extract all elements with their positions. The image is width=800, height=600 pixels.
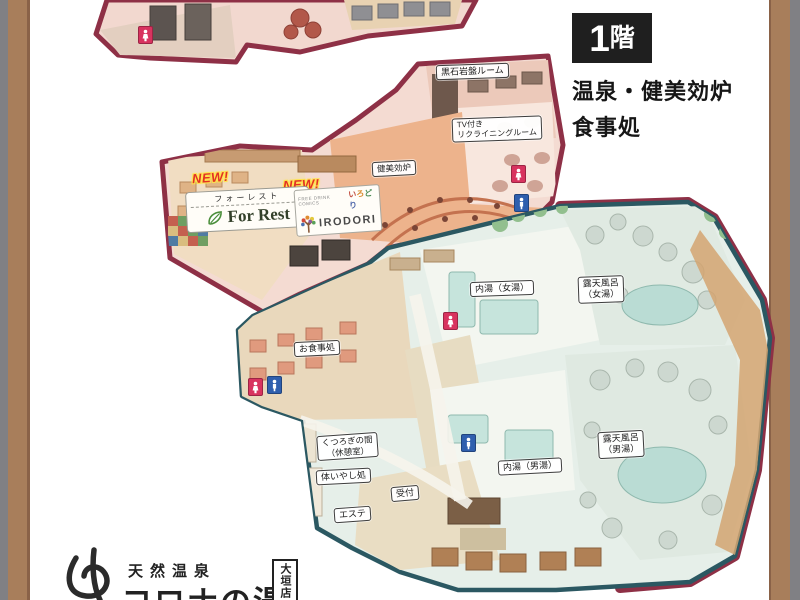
irodori-hiragana: いろどり: [348, 187, 377, 211]
forrest-sign: フォーレスト For Rest: [185, 186, 311, 233]
floor-number: 1: [589, 20, 610, 57]
logo-corona-no-yu: コロナの湯: [121, 577, 286, 600]
label-inner-bath-womens: 内湯（女湯）: [470, 280, 535, 297]
label-kenbikoro: 健美効炉: [372, 160, 417, 177]
womens-restroom-icon: [511, 165, 526, 183]
womens-restroom-icon: [248, 378, 263, 396]
new-badge-forrest: NEW!: [192, 169, 230, 187]
logo-branch-name: 大垣店: [277, 563, 293, 600]
yu-mark-icon: [60, 546, 120, 600]
label-reception: 受付: [390, 485, 419, 503]
floor-badge: 1 階: [572, 13, 652, 63]
irodori-sign: FREE DRINK COMICS いろどり IRODORI: [293, 184, 382, 237]
irodori-logotype: IRODORI: [319, 213, 377, 229]
label-ganban-room: 黒石岩盤ルーム: [436, 63, 509, 81]
womens-restroom-icon: [138, 26, 153, 44]
label-esthetic: エステ: [334, 506, 372, 524]
floor-description: 温泉・健美効炉 食事処: [572, 74, 733, 147]
logo-branch-box: 大垣店: [272, 559, 298, 600]
irodori-tagline: FREE DRINK COMICS: [298, 193, 346, 206]
mens-restroom-icon: [514, 194, 529, 212]
label-open-air-bath-mens: 露天風呂 （男湯）: [597, 430, 644, 459]
floor-suffix: 階: [610, 26, 635, 51]
mens-restroom-icon: [461, 434, 476, 452]
label-tv-recliner-room: TV付き リクライニングルーム: [452, 115, 543, 142]
womens-restroom-icon: [443, 312, 458, 330]
floor-map-page: 1 階 温泉・健美効炉 食事処 黒石岩盤ルーム TV付き リクライニングルーム …: [0, 0, 800, 600]
mens-restroom-icon: [267, 376, 282, 394]
tree-icon: [300, 215, 316, 234]
label-body-healing: 体いやし処: [316, 468, 372, 486]
label-relaxation-room: くつろぎの間 （休憩室）: [316, 432, 379, 461]
label-open-air-bath-womens: 露天風呂 （女湯）: [578, 275, 625, 303]
floor-description-line2: 食事処: [572, 110, 733, 146]
label-dining-hall: お食事処: [294, 340, 341, 358]
forrest-logotype: For Rest: [227, 204, 290, 227]
floor-description-line1: 温泉・健美効炉: [572, 74, 733, 110]
leaf-icon: [206, 209, 224, 227]
